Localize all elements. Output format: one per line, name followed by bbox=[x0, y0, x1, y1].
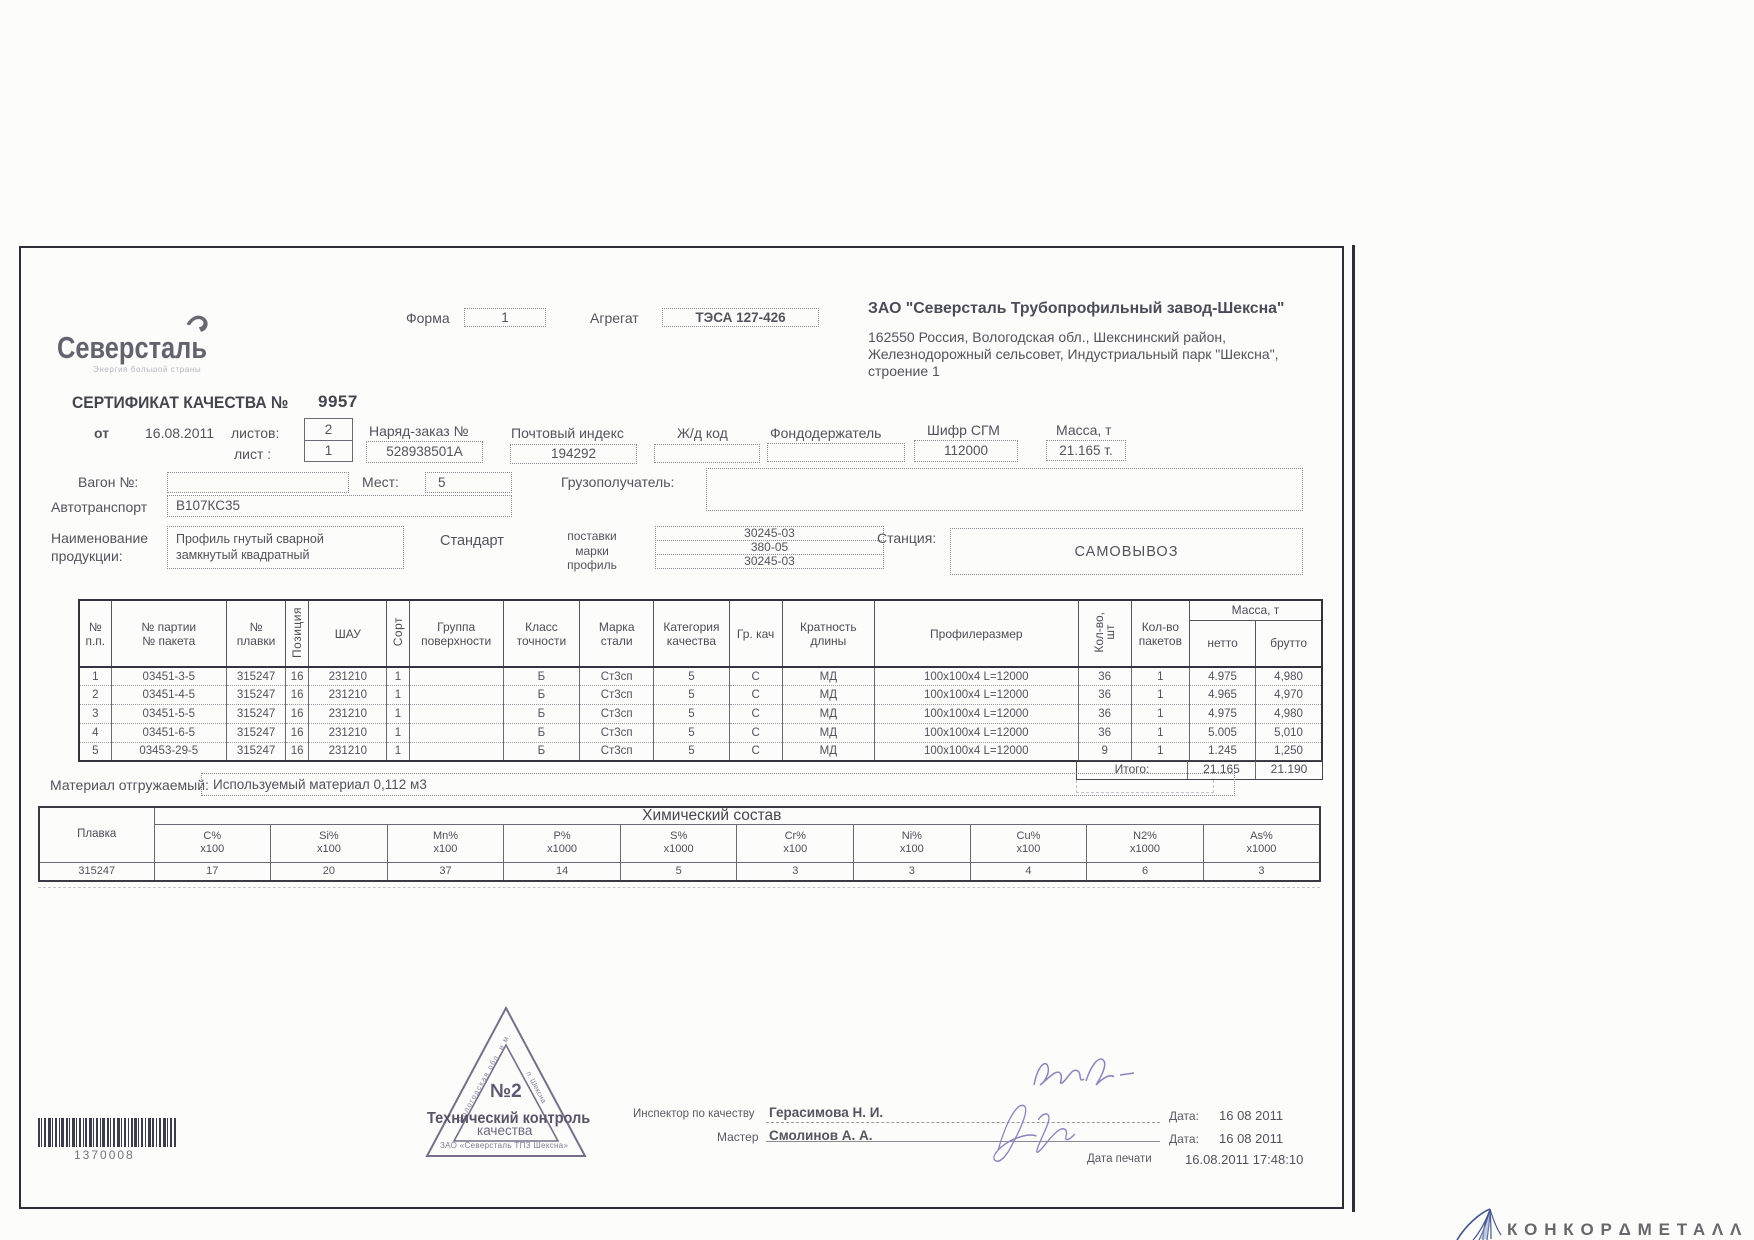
svg-text:№2: №2 bbox=[490, 1081, 522, 1102]
svg-text:ЗАО «Северсталь ТПЗ Шексна»: ЗАО «Северсталь ТПЗ Шексна» bbox=[440, 1141, 569, 1150]
